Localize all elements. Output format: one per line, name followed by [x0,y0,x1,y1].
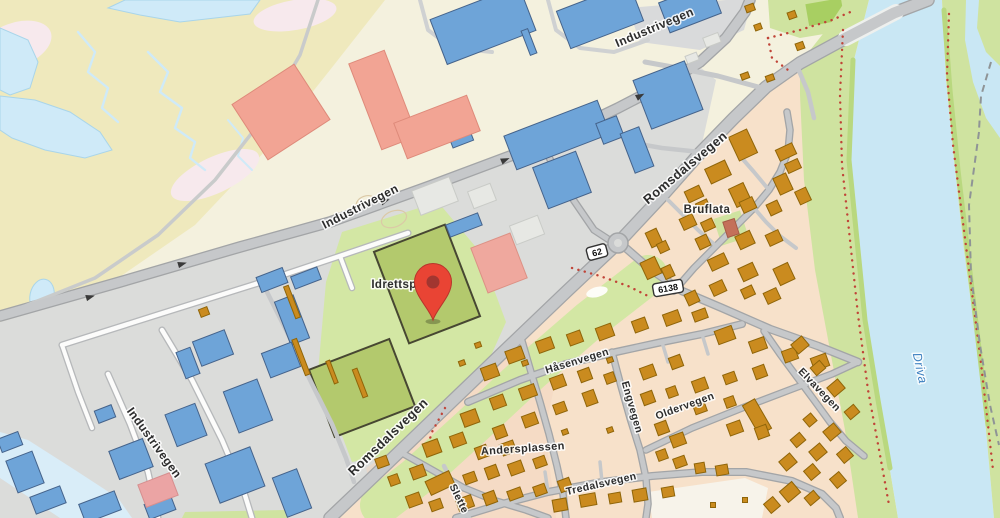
building-house [711,503,716,508]
building-house [715,464,729,476]
map-canvas[interactable]: IndustrivegenIndustrivegenIndustrivegenR… [0,0,1000,518]
roundabout-island [614,239,622,247]
map-label-bruflata: Bruflata [684,204,731,216]
building-house [694,462,706,474]
building-house [743,498,748,503]
building-house [608,492,622,504]
map-viewport[interactable]: IndustrivegenIndustrivegenIndustrivegenR… [0,0,1000,518]
building-house [552,498,568,512]
building-house [632,488,648,502]
building-house [661,486,675,498]
building-house [579,493,597,508]
